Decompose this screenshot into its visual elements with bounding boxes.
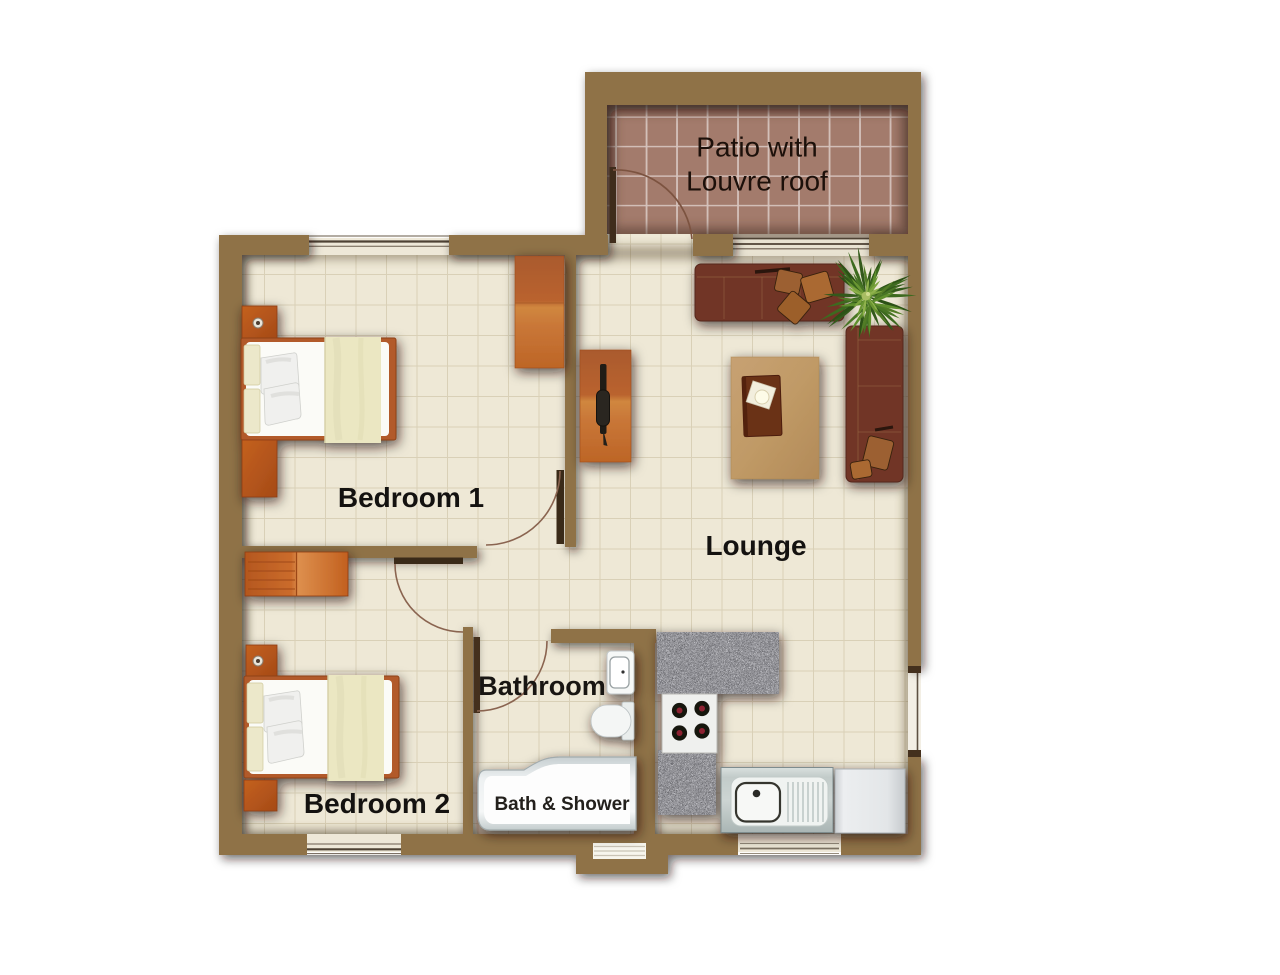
svg-text:Bedroom 2: Bedroom 2 (304, 788, 450, 819)
svg-text:Patio with: Patio with (696, 132, 817, 163)
svg-text:Lounge: Lounge (705, 530, 806, 561)
svg-text:Bathroom: Bathroom (478, 671, 606, 701)
svg-text:Bath & Shower: Bath & Shower (494, 794, 630, 815)
svg-text:Bedroom 1: Bedroom 1 (338, 482, 484, 513)
svg-text:Louvre roof: Louvre roof (686, 166, 828, 197)
